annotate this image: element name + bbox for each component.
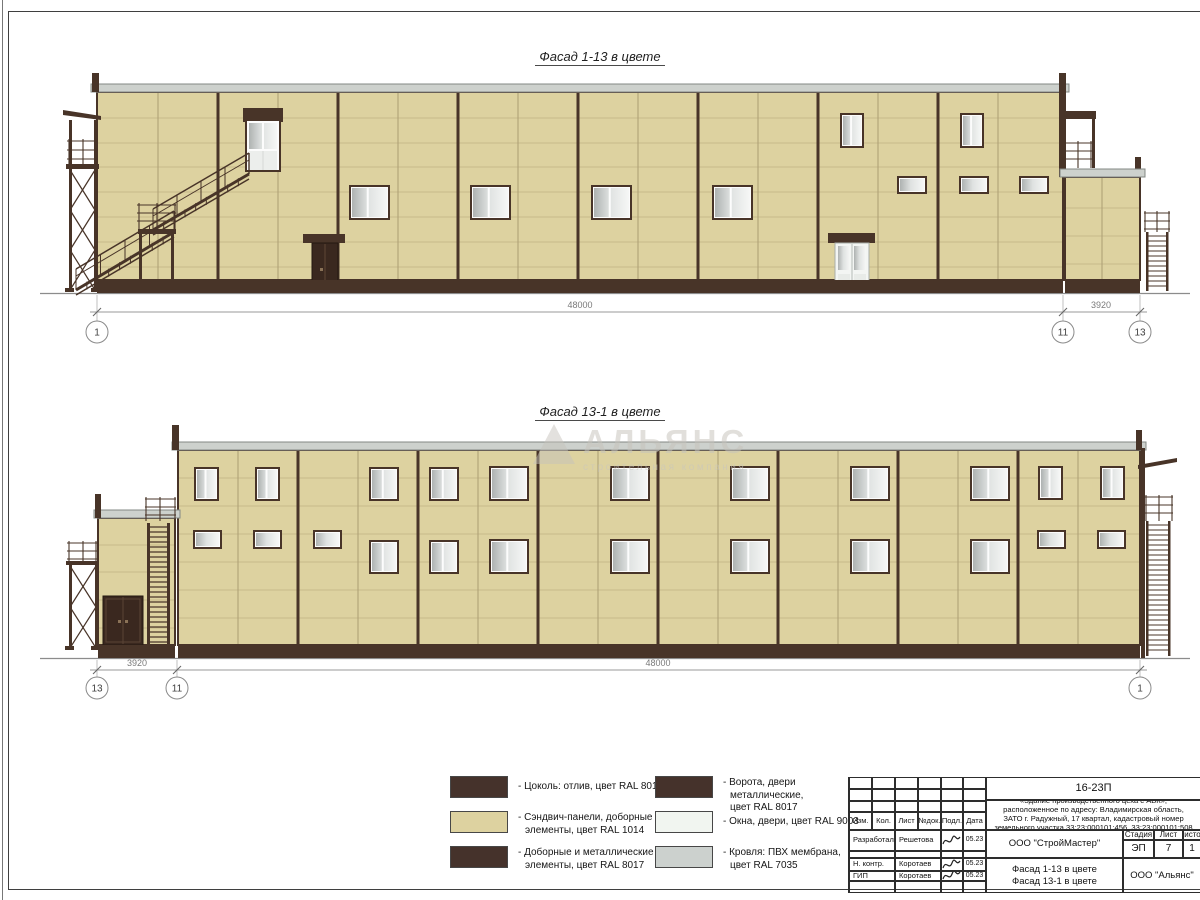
window [1100,466,1125,500]
tb-signature [941,858,963,871]
window [255,467,280,501]
svg-text:13: 13 [91,684,103,695]
svg-text:1: 1 [1137,684,1143,695]
titleblock-cell [895,801,918,812]
tb-name: Коротаев [895,871,941,881]
facade-1: 48000392011113 [40,73,1190,343]
titleblock-cell [963,789,986,801]
tb-header: Подл. [941,812,963,830]
titleblock-cell [918,789,941,801]
window [369,540,399,574]
svg-text:48000: 48000 [645,658,670,668]
legend-swatch [655,846,713,868]
titleblock-cell [963,801,986,812]
drawing-sheet: { "sheet": { "code": "16-23П" }, "facade… [0,0,1200,900]
vent-window [193,530,222,549]
tb-signature [941,851,963,858]
tb-stage: ЭП [1123,840,1154,858]
svg-text:11: 11 [1058,328,1069,339]
window [489,539,529,574]
legend-swatch [450,811,508,833]
tb-date [963,881,986,893]
window [369,467,399,501]
tb-date: 05.23 [963,871,986,881]
window [712,185,753,220]
color-legend: - Цоколь: отлив, цвет RAL 8017- Сэндвич-… [450,776,850,876]
titleblock-cell [849,801,872,812]
legend-swatch [450,846,508,868]
tb-name [895,881,941,893]
tb-org1: ООО "СтройМастер" [986,830,1123,858]
tb-sheets: 1 [1183,840,1200,858]
window [970,539,1010,574]
legend-label: - Окна, двери, цвет RAL 9003 [723,816,868,829]
vent-window [1037,530,1066,549]
titleblock-cell [941,789,963,801]
window [349,185,390,220]
vent-window [253,530,282,549]
signature-icon [942,871,962,881]
svg-text:3920: 3920 [127,658,147,668]
tb-date: 05.23 [963,858,986,871]
titleblock-cell [963,777,986,789]
tb-header: Лист [895,812,918,830]
tb-name: Решетова [895,830,941,851]
titleblock-cell [941,801,963,812]
titleblock-cell [872,777,895,789]
titleblock-cell [895,789,918,801]
legend-swatch [655,776,713,798]
tb-signature [941,871,963,881]
window [610,539,650,574]
legend-swatch [655,811,713,833]
svg-text:13: 13 [1134,328,1146,339]
legend-label: - Кровля: ПВХ мембрана, цвет RAL 7035 [723,847,868,872]
window [730,466,770,501]
window [850,466,890,501]
window [730,539,770,574]
svg-text:48000: 48000 [567,300,592,310]
signature-icon [942,858,962,871]
titleblock-cell [872,789,895,801]
titleblock-cell [849,777,872,789]
window [960,113,984,148]
tb-header: №док. [918,812,941,830]
legend-swatch [450,776,508,798]
tb-sheet-label: Лист [1154,830,1183,840]
window [850,539,890,574]
tb-role: ГИП [849,871,895,881]
window [840,113,864,148]
tb-date: 05.23 [963,830,986,851]
titleblock-cell [895,777,918,789]
tb-header: Изм. [849,812,872,830]
tb-org2: ООО "Альянс" [1123,858,1200,893]
vent-window [959,176,989,194]
titleblock-cell [918,801,941,812]
svg-text:1: 1 [94,328,100,339]
title-block: Изм.Кол.Лист№док.Подл.ДатаРазработалРеше… [848,777,1200,893]
window [470,185,511,220]
vent-window [1097,530,1126,549]
tb-signature [941,830,963,851]
window [970,466,1010,501]
tb-object-description: «Здание производственного цеха с АБК», р… [986,800,1200,830]
signature-icon [942,834,962,848]
svg-text:3920: 3920 [1091,300,1111,310]
tb-name [895,851,941,858]
tb-stage-label: Стадия [1123,830,1154,840]
tb-sheet: 7 [1154,840,1183,858]
tb-role [849,851,895,858]
window [429,467,459,501]
titleblock-cell [941,777,963,789]
tb-date [963,851,986,858]
titleblock-cell [872,801,895,812]
svg-text:11: 11 [172,684,183,695]
window [610,466,650,501]
tb-sheets-label: Листов [1183,830,1200,840]
vent-window [1019,176,1049,194]
window [591,185,632,220]
titleblock-cell [918,777,941,789]
tb-doc-number: 16-23П [986,777,1200,800]
window [194,467,219,501]
tb-role [849,881,895,893]
tb-name: Коротаев [895,858,941,871]
tb-signature [941,881,963,893]
window [489,466,529,501]
vent-window [897,176,927,194]
window [1038,466,1063,500]
tb-role: Разработал [849,830,895,851]
tb-role: Н. контр. [849,858,895,871]
tb-header: Дата [963,812,986,830]
titleblock-cell [849,789,872,801]
window [429,540,459,574]
facade-2: 39204800013111 [40,425,1190,699]
vent-window [313,530,342,549]
facades-drawing: 4800039201111339204800013111 [0,0,1200,760]
tb-header: Кол. [872,812,895,830]
legend-label: - Ворота, двери металлические, цвет RAL … [723,777,868,815]
tb-drawing-title: Фасад 1-13 в цвете Фасад 13-1 в цвете [986,858,1123,893]
